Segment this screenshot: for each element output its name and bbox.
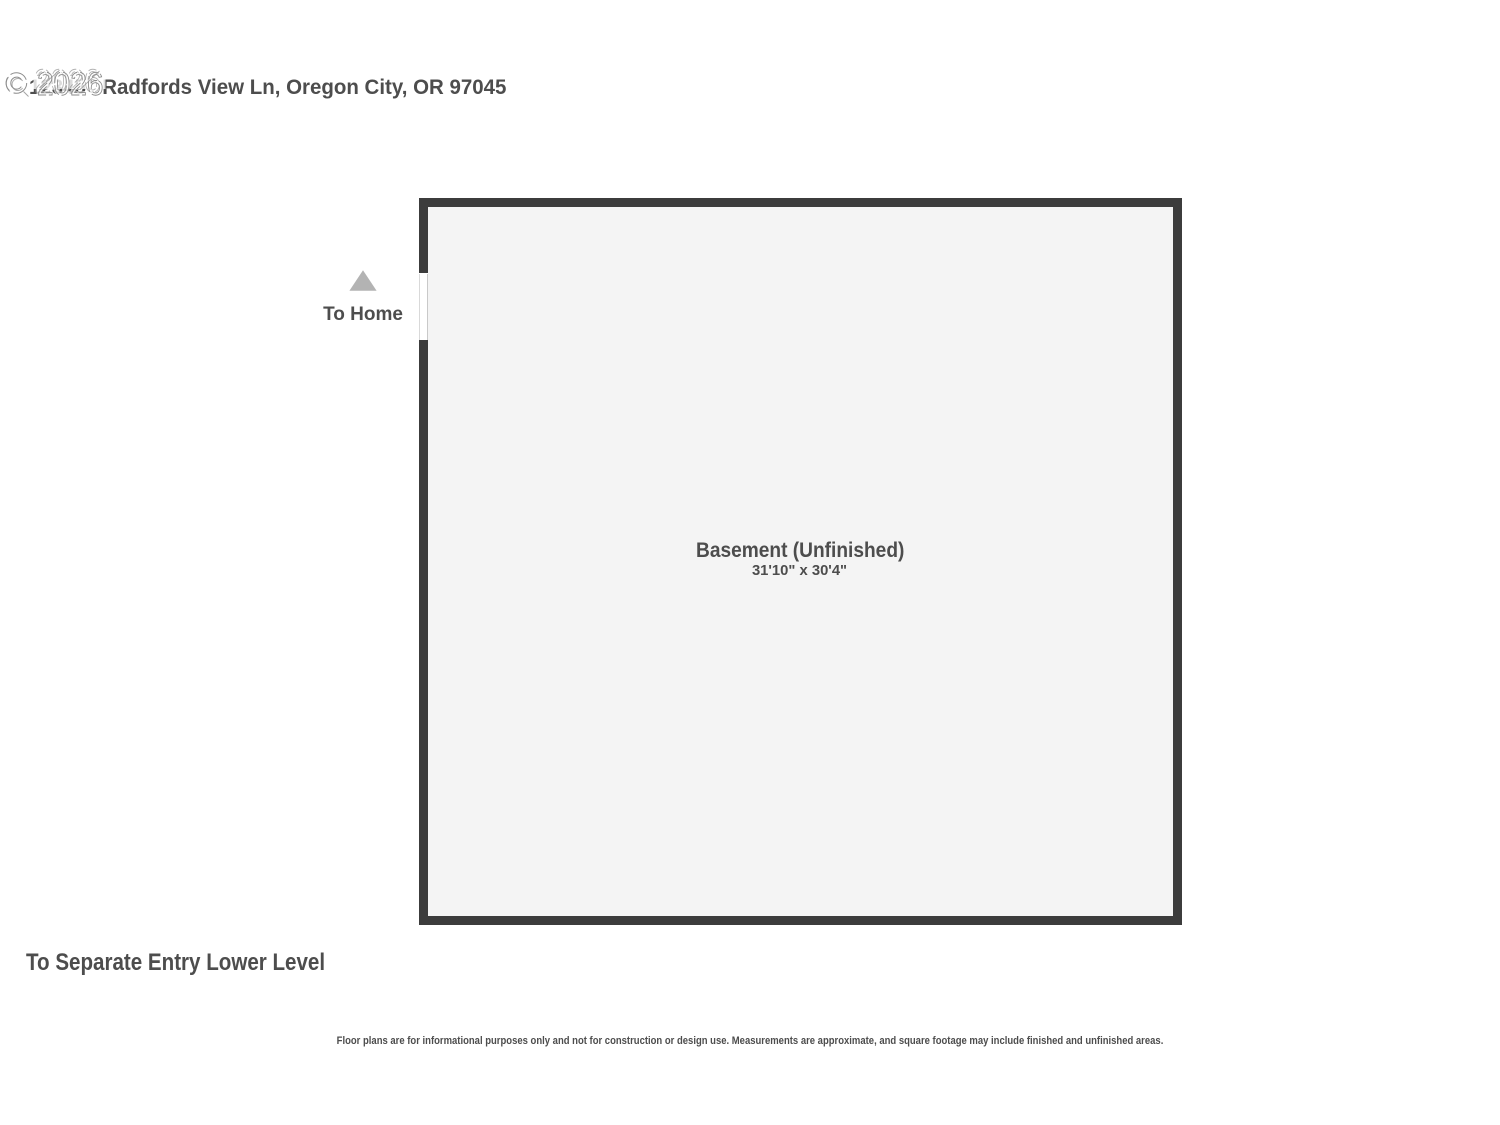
- svg-text:2026: 2026: [37, 66, 104, 102]
